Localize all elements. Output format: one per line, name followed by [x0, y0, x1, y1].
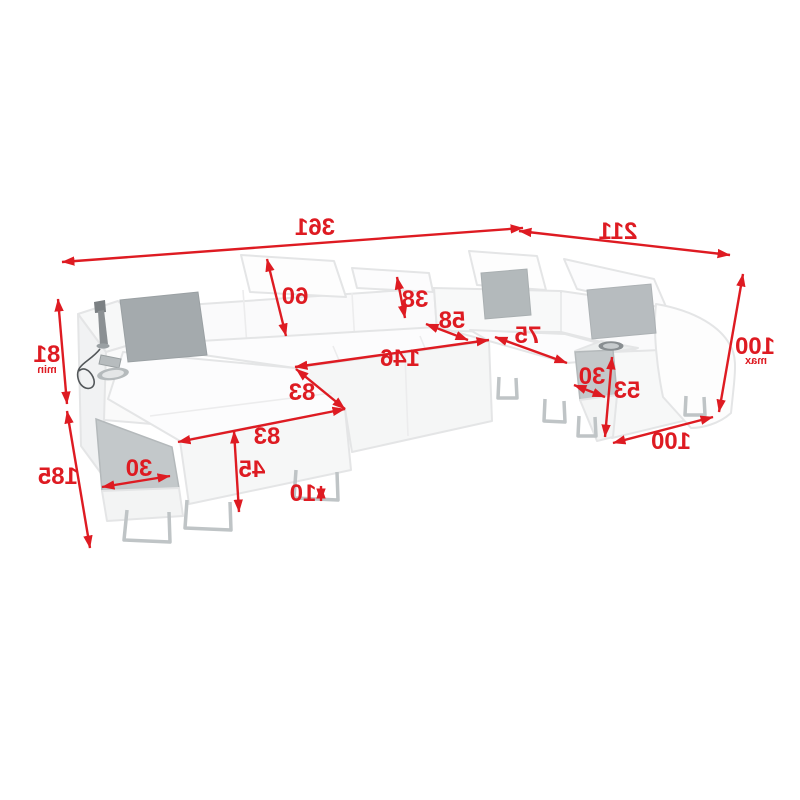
dim-armrest-height-min: 81 min: [34, 299, 67, 404]
pillow-corner: [481, 269, 531, 319]
dim-total-width-value: 361: [295, 214, 335, 241]
lamp-base: [97, 343, 110, 348]
dim-total-width: 361: [62, 214, 523, 262]
dim-console-height-value: 53: [614, 377, 641, 404]
dim-backrest-height-value: 60: [282, 283, 309, 310]
cupholder-right-inner: [603, 343, 619, 349]
dim-leg-height: 10: [290, 480, 321, 507]
sofa-leg: [544, 399, 565, 422]
dim-chaise-front-width-value: 83: [254, 423, 281, 450]
sofa-dimension-diagram: 361 211 100 max 81 min 185 60 38: [0, 0, 800, 800]
dim-armrest-height-suffix: min: [37, 364, 57, 376]
dim-right-width-value: 211: [599, 218, 638, 245]
dim-seat-depth-value: 58: [439, 307, 466, 334]
dim-height-max-suffix: max: [744, 355, 767, 367]
dim-right-section-depth-value: 100: [651, 428, 691, 455]
dim-console-width-value: 30: [579, 363, 606, 390]
dim-headrest-height-value: 38: [402, 286, 429, 313]
dim-right-seat-width-value: 75: [515, 322, 542, 349]
dim-seat-height-value: 45: [239, 456, 266, 483]
dim-chaise-depth-value: 185: [38, 463, 78, 490]
pillow-right: [587, 284, 656, 339]
dim-right-width: 211: [519, 218, 730, 255]
right-console-base: [580, 395, 617, 441]
dim-corner-seat-width-value: 83: [289, 379, 316, 406]
dim-bed-length-value: 146: [380, 345, 420, 372]
pillow-left: [120, 292, 207, 362]
sofa-leg: [498, 377, 517, 398]
dim-left-console-width-value: 30: [126, 455, 153, 482]
dim-leg-height-value: 10: [290, 480, 317, 507]
sofa-leg: [185, 500, 231, 530]
